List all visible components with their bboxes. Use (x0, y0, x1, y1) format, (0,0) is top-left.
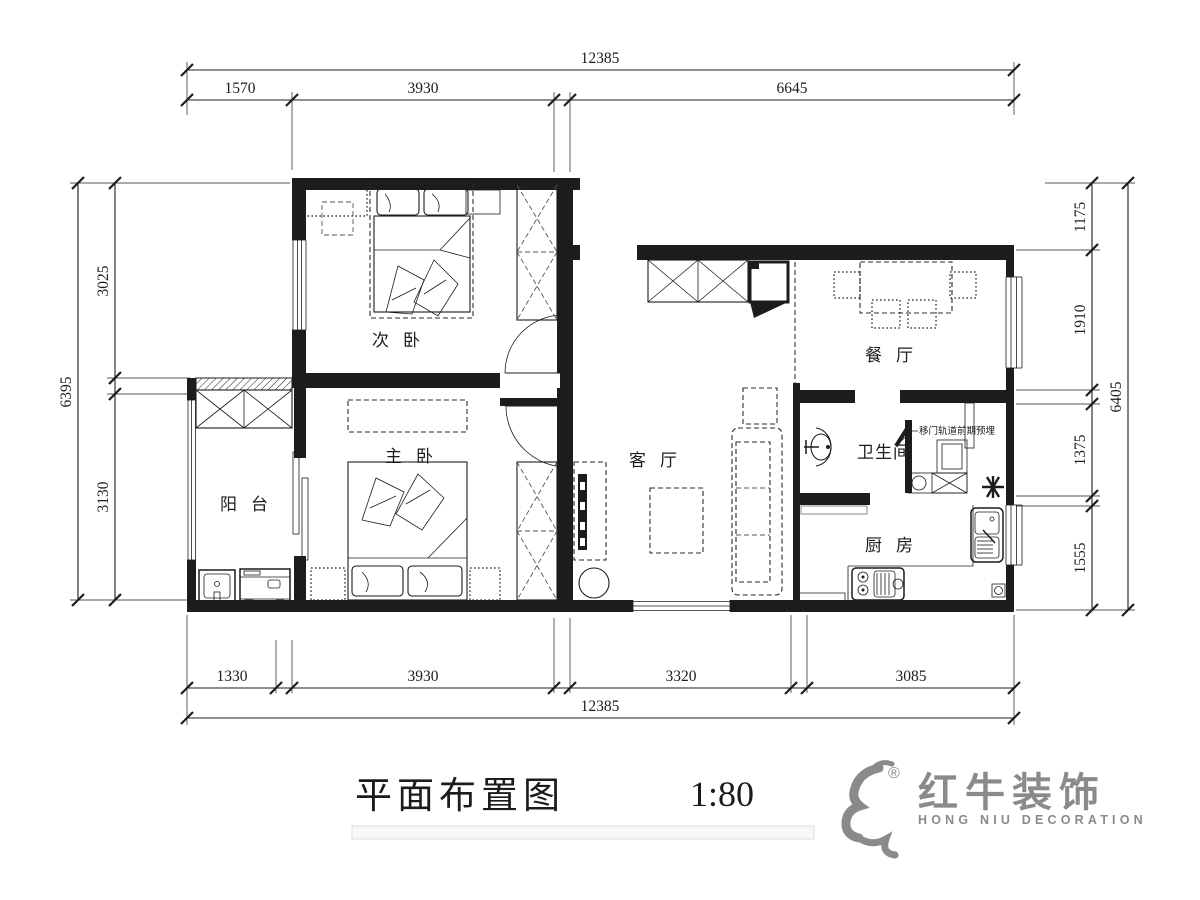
label-balcony: 阳台 (220, 495, 282, 514)
balcony-sliding-door (293, 452, 308, 560)
dim-right-seg1: 1175 (1072, 202, 1089, 233)
title-block: 平面布置图 1:80 (352, 774, 814, 839)
dim-right-seg4: 1555 (1072, 542, 1089, 573)
dim-top-total: 12385 (581, 50, 620, 67)
label-secondary-bedroom: 次卧 (372, 331, 434, 350)
bedroom2-left-window (292, 240, 306, 330)
entry-door (750, 262, 788, 318)
floor-plan-drawing: 12385 1570 3930 6645 1330 3930 3320 3085 (0, 0, 1200, 900)
dining-chair (950, 272, 976, 298)
drawing-title: 平面布置图 (355, 776, 565, 817)
living-bottom-window (633, 600, 730, 612)
master-nightstand-left (311, 568, 345, 600)
label-bathroom: 卫生间 (857, 443, 911, 462)
label-kitchen: 厨房 (865, 536, 927, 555)
dimension-top: 12385 1570 3930 6645 (181, 50, 1020, 172)
dim-right-total: 6405 (1108, 381, 1125, 412)
floor-plan-sheet: 12385 1570 3930 6645 1330 3930 3320 3085 (0, 0, 1200, 900)
washbasin-counter (908, 473, 967, 493)
balcony-hatched-wall (196, 378, 292, 390)
bed2-side-ledge (466, 190, 500, 214)
light-point-star (982, 476, 1004, 498)
bed2-pillow-left (377, 189, 419, 215)
kitchen-shelf (801, 506, 867, 514)
master-nightstand-right (470, 568, 500, 600)
dim-bottom-seg2: 3930 (408, 668, 439, 685)
master-pillow-left (352, 566, 403, 596)
dim-right-seg3: 1375 (1072, 434, 1089, 465)
label-dining-room: 餐厅 (865, 346, 927, 365)
dining-chair (872, 300, 900, 328)
mop-basin (199, 570, 235, 604)
dim-left-seg2: 3130 (95, 481, 112, 512)
floor-plant (579, 568, 609, 598)
title-underline-bar (352, 826, 814, 839)
kitchen-sink (971, 508, 1003, 562)
bed2-pillow-right (424, 189, 468, 215)
bedroom2-wardrobe (517, 185, 557, 320)
master-bedroom-furniture (311, 400, 557, 600)
dimension-right: 1175 1910 1375 1555 6405 (1016, 177, 1135, 616)
balcony-left-window (187, 400, 196, 560)
kitchen-fixtures (800, 505, 1005, 612)
dim-top-seg1: 1570 (225, 80, 256, 97)
dim-top-seg2: 3930 (408, 80, 439, 97)
toilet (804, 428, 831, 466)
shoe-cabinet (648, 260, 748, 302)
logo-brand-cn: 红牛装饰 (918, 771, 1106, 815)
label-living-room: 客厅 (629, 451, 691, 470)
dining-furniture (648, 260, 976, 328)
registered-mark: ® (888, 765, 900, 782)
label-master-bedroom: 主卧 (385, 447, 447, 466)
windows (187, 240, 1022, 612)
logo-brand-en: HONG NIU DECORATION (918, 813, 1147, 827)
logo: ® 红牛装饰 HONG NIU DECORATION (846, 763, 1147, 855)
dim-bottom-total: 12385 (581, 698, 620, 715)
dim-bottom-seg4: 3085 (896, 668, 927, 685)
dim-left-seg1: 3025 (95, 265, 112, 296)
dining-right-window (1006, 277, 1022, 368)
bedroom2-door (505, 315, 563, 373)
shower-column (937, 440, 967, 473)
dim-right-seg2: 1910 (1072, 304, 1089, 335)
kitchen-right-window (1006, 505, 1022, 565)
dimension-bottom: 1330 3930 3320 3085 12385 (181, 615, 1020, 725)
balcony-cabinet (196, 390, 292, 428)
drawing-scale: 1:80 (690, 774, 754, 814)
dining-chair (834, 272, 860, 298)
sofa (732, 388, 782, 595)
dim-left-total: 6395 (58, 376, 75, 407)
master-pillow-right (408, 566, 462, 596)
master-wardrobe (517, 462, 557, 600)
bedroom2-furniture (305, 182, 557, 320)
doors (293, 262, 910, 560)
coffee-table (650, 488, 703, 553)
annotation-text: 移门轨道前期预埋 (919, 425, 996, 437)
bed2-quilt (386, 266, 424, 314)
dim-top-seg3: 6645 (777, 80, 808, 97)
master-overhead-wardrobe (348, 400, 467, 432)
dining-table (860, 262, 952, 313)
floor-drain (992, 584, 1005, 597)
bed2-headboard-shelf (305, 188, 367, 216)
gas-stove (852, 568, 904, 600)
dimension-left: 6395 3025 3130 (58, 177, 290, 606)
tv-unit (574, 462, 606, 560)
bed2-nightstand (322, 202, 353, 235)
dining-chair (908, 300, 936, 328)
bed2-mattress (374, 216, 470, 312)
dim-bottom-seg1: 1330 (217, 668, 248, 685)
dim-bottom-seg3: 3320 (666, 668, 697, 685)
side-table (743, 388, 777, 424)
